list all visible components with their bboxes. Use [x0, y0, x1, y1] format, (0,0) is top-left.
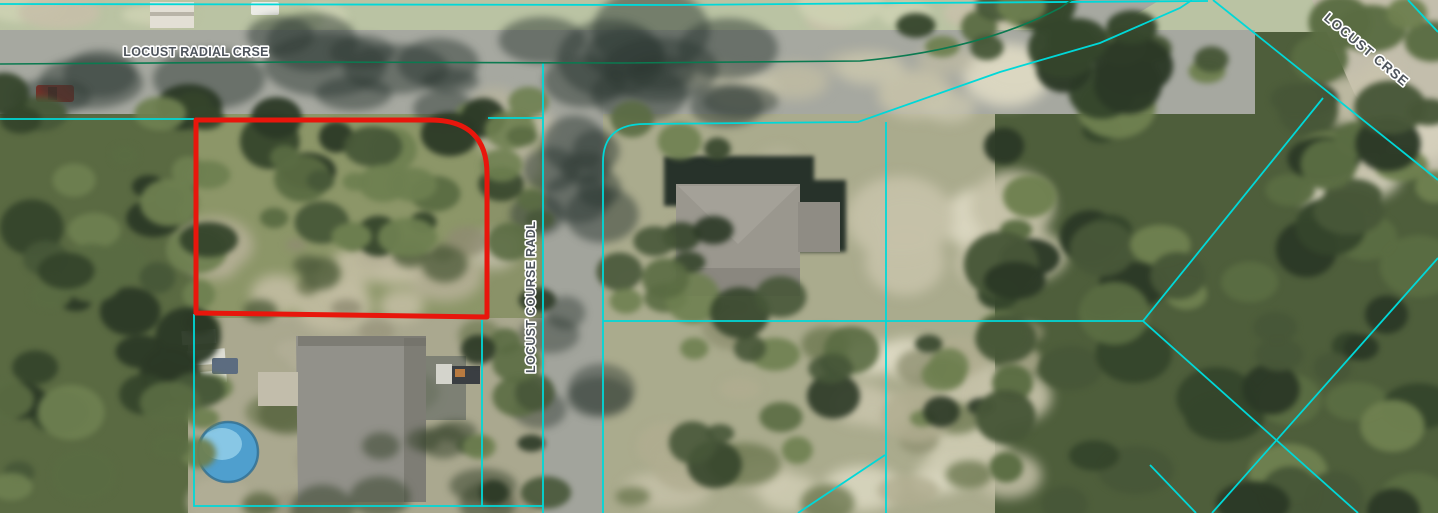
- terrain-blob: [808, 354, 853, 383]
- terrain-blob: [1242, 364, 1299, 415]
- terrain-blob: [734, 335, 766, 362]
- terrain-blob: [610, 288, 643, 313]
- terrain-blob: [331, 223, 372, 250]
- truck-cab: [436, 364, 452, 384]
- terrain-blob: [293, 255, 321, 274]
- terrain-blob: [642, 258, 689, 299]
- street-label-locust-course-radl: LOCUST COURSE RADL: [524, 221, 538, 373]
- terrain-blob: [1365, 296, 1408, 334]
- terrain-blob: [307, 170, 335, 191]
- terrain-blob: [518, 189, 545, 211]
- terrain-blob: [704, 138, 731, 161]
- terrain-blob: [155, 307, 221, 366]
- terrain-blob: [12, 350, 58, 384]
- terrain-blob: [782, 437, 813, 464]
- terrain-blob: [1070, 221, 1136, 277]
- terrain-blob: [517, 435, 545, 452]
- gray-car: [212, 358, 238, 374]
- terrain-blob: [1177, 367, 1257, 429]
- terrain-blob: [362, 432, 400, 459]
- terrain-blob: [1069, 440, 1119, 470]
- small-house-roofline: [150, 12, 194, 16]
- terrain-blob: [975, 390, 1036, 444]
- terrain-blob: [567, 377, 632, 418]
- terrain-blob: [719, 378, 760, 400]
- terrain-blob: [703, 85, 779, 117]
- terrain-blob: [0, 107, 41, 134]
- terrain-blob: [1221, 262, 1278, 303]
- terrain-blob: [616, 487, 650, 506]
- terrain-blob: [53, 164, 96, 197]
- terrain-blob: [286, 239, 307, 251]
- terrain-blob: [1039, 346, 1103, 390]
- terrain-blob: [1354, 81, 1426, 135]
- terrain-blob: [1301, 139, 1357, 189]
- terrain-blob: [111, 144, 139, 165]
- terrain-blob: [1079, 282, 1150, 345]
- terrain-blob: [1255, 338, 1303, 371]
- terrain-blob: [984, 128, 1024, 165]
- terrain-blob: [479, 480, 508, 505]
- house-roof-wing: [798, 202, 840, 252]
- terrain-blob: [51, 448, 118, 502]
- terrain-blob: [183, 280, 215, 309]
- terrain-blob: [1150, 252, 1205, 299]
- terrain-blob: [846, 176, 954, 260]
- terrain-blob: [970, 35, 1003, 60]
- terrain-blob: [422, 69, 479, 93]
- terrain-blob: [984, 262, 1046, 299]
- terrain-blob: [38, 385, 105, 440]
- aerial-parcel-map[interactable]: LOCUST RADIAL CRSE LOCUST COURSE RADL LO…: [0, 0, 1438, 513]
- terrain-blob: [946, 460, 993, 488]
- terrain-blob: [185, 161, 230, 189]
- terrain-blob: [316, 77, 392, 111]
- truck-cargo: [455, 369, 465, 377]
- terrain-blob: [1314, 189, 1385, 235]
- terrain-blob: [180, 222, 238, 257]
- terrain-blob: [358, 164, 408, 202]
- map-viewport[interactable]: LOCUST RADIAL CRSE LOCUST COURSE RADL LO…: [0, 0, 1438, 513]
- terrain-blob: [422, 246, 468, 283]
- terrain-blob: [989, 452, 1023, 482]
- shed: [258, 372, 298, 406]
- terrain-blob: [463, 434, 496, 459]
- terrain-blob: [151, 432, 190, 459]
- terrain-blob: [1360, 400, 1424, 452]
- terrain-blob: [378, 218, 438, 257]
- terrain-blob: [134, 97, 186, 131]
- terrain-blob: [38, 252, 95, 289]
- terrain-blob: [461, 335, 495, 364]
- terrain-blob: [344, 126, 403, 166]
- terrain-blob: [658, 123, 702, 160]
- terrain-blob: [521, 476, 571, 508]
- terrain-blob: [759, 402, 802, 432]
- terrain-blob: [694, 216, 734, 244]
- street-label-locust-radial-crse: LOCUST RADIAL CRSE: [123, 45, 268, 59]
- terrain-blob: [68, 213, 121, 248]
- house2-eave: [298, 336, 426, 346]
- terrain-blob: [139, 262, 175, 293]
- terrain-blob: [1343, 334, 1379, 360]
- terrain-blob: [1003, 175, 1056, 218]
- terrain-blob: [896, 13, 935, 38]
- terrain-blob: [669, 421, 716, 464]
- terrain-blob: [915, 335, 942, 353]
- terrain-blob: [140, 179, 199, 226]
- house2-roof-edge: [404, 338, 426, 502]
- terrain-blob: [680, 338, 708, 360]
- terrain-blob: [1194, 46, 1228, 72]
- terrain-blob: [611, 101, 654, 138]
- terrain-blob: [923, 396, 960, 427]
- terrain-blob: [243, 300, 277, 322]
- terrain-blob: [260, 208, 288, 228]
- terrain-blob: [755, 276, 806, 317]
- terrain-blob: [506, 126, 537, 146]
- terrain-blob: [633, 226, 675, 256]
- terrain-blob: [187, 408, 219, 428]
- terrain-blob: [1270, 83, 1318, 114]
- terrain-blob: [1106, 10, 1157, 44]
- terrain-blob: [929, 348, 969, 385]
